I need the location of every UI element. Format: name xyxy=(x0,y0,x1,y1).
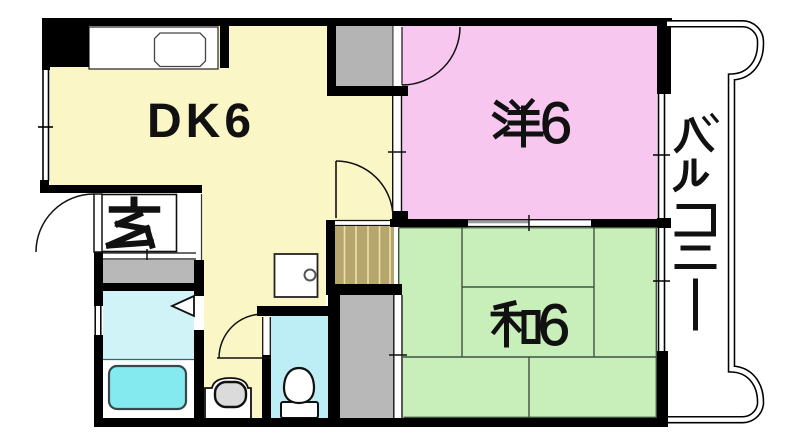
svg-text:6: 6 xyxy=(538,293,570,358)
svg-text:DK6: DK6 xyxy=(147,95,255,148)
svg-text:6: 6 xyxy=(540,91,572,156)
